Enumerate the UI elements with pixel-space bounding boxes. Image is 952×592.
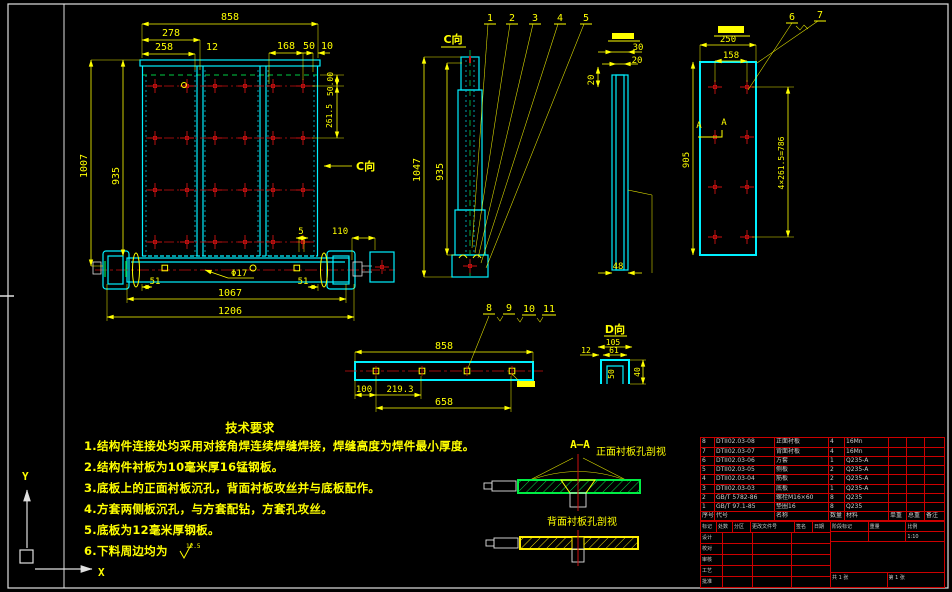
balloon-3: 3: [532, 13, 538, 24]
dim-51-right: 51: [298, 277, 309, 287]
dim-20-left: 20: [587, 75, 597, 86]
table-row: 6DTII02.03-06方套1Q235-A: [701, 456, 944, 465]
dim-1206: 1206: [218, 306, 242, 317]
dim-1047: 1047: [412, 158, 423, 182]
front-liner-section: [484, 454, 640, 511]
balloon-7: 7: [817, 10, 823, 21]
technical-requirements: 技术要求 1.结构件连接处均采用对接角焊连续焊缝焊接，焊缝高度为焊件最小厚度。 …: [84, 420, 475, 558]
front-view: 858 278 258 12 168 50 10 1007 935 50.00 …: [79, 12, 395, 321]
tech-item-1: 1.结构件连接处均采用对接角焊连续焊缝焊接，焊缝高度为焊件最小厚度。: [84, 439, 475, 453]
tb-cell: 比例: [906, 522, 944, 531]
bom-cell: [907, 448, 925, 456]
bom-cell: [889, 475, 907, 483]
bom-cell: [925, 466, 944, 474]
c-direction-arrow: C向: [324, 159, 375, 173]
d-bar-view: 858 100 219.3 658 8 9 10 11: [345, 303, 556, 412]
bom-cell: [925, 503, 944, 511]
dim-858-d: 858: [435, 341, 453, 352]
bom-cell: DTII02.03-08: [715, 438, 775, 447]
dim-261-5: 261.5: [325, 104, 334, 128]
dim-12: 12: [206, 42, 218, 53]
hole-tag-highlight: [517, 381, 535, 387]
tb-cell: 阶段标记: [831, 522, 869, 531]
tb-cell: 共 1 张: [831, 573, 888, 587]
balloon-9: 9: [506, 303, 512, 314]
table-row: 1GB/T 97.1-85垫圈168Q235: [701, 502, 944, 511]
bom-cell: [907, 485, 925, 493]
bom-header-cell: 代号: [715, 512, 775, 520]
dim-30: 30: [633, 43, 644, 53]
square-tube-detail: [370, 252, 394, 282]
dim-100: 100: [356, 385, 372, 395]
bom-cell: 1: [829, 457, 845, 465]
balloon-8: 8: [486, 303, 492, 314]
dim-250: 250: [720, 35, 736, 45]
balloon-6: 6: [789, 12, 795, 23]
dim-935: 935: [111, 167, 122, 185]
balloon-4: 4: [557, 13, 563, 24]
tb-cell: 工艺: [701, 566, 723, 576]
dim-168: 168: [277, 41, 295, 52]
bom-header-cell: 单重: [889, 512, 907, 520]
bom-cell: Q235-A: [845, 475, 889, 483]
balloon-2: 2: [509, 13, 515, 24]
bom-cell: [925, 485, 944, 493]
bom-cell: 4: [829, 448, 845, 456]
bom-cell: 正面衬板: [775, 438, 829, 447]
balloon-1: 1: [487, 13, 493, 24]
bom-header-cell: 备注: [925, 512, 944, 520]
bom-cell: 侧板: [775, 466, 829, 474]
dim-48: 48: [613, 262, 624, 272]
bom-cell: 筋板: [775, 475, 829, 483]
tb-cell: 签名: [795, 522, 813, 532]
table-row: 7DTII02.03-07背面衬板416Mn: [701, 447, 944, 456]
bom-cell: [889, 503, 907, 511]
tech-title: 技术要求: [225, 420, 275, 435]
c-arrow-label: C向: [356, 159, 375, 173]
tb-cell: 标记: [701, 522, 717, 532]
dim-12-channel: 12: [581, 346, 591, 355]
table-row: 3DTII02.03-03底板1Q235-A: [701, 484, 944, 493]
bom-cell: [907, 438, 925, 447]
bom-header-cell: 总重: [907, 512, 925, 520]
back-liner-section: [486, 530, 638, 566]
c-view-balloons: 1 2 3 4 5: [472, 13, 592, 268]
bom-cell: [907, 457, 925, 465]
bom-cell: 7: [701, 448, 715, 456]
table-row: 2GB/T 5782-86螺栓M16×608Q235: [701, 493, 944, 502]
bom-cell: [907, 503, 925, 511]
tech-item-5: 5.底板为12毫米厚钢板。: [84, 523, 220, 537]
bom-cell: 1: [701, 503, 715, 511]
bom-cell: Q235: [845, 503, 889, 511]
bom-cell: 6: [701, 457, 715, 465]
bom-cell: [889, 457, 907, 465]
parts-table: 8DTII02.03-08正面衬板416Mn 7DTII02.03-07背面衬板…: [700, 437, 945, 521]
title-block: 标记 处数 分区 更改文件号 签名 日期 设计 校对 审核 工艺 批准 阶段标记…: [700, 521, 945, 588]
title-block-right: 阶段标记 重量 比例 1:10 共 1 张 第 1 张: [831, 522, 944, 587]
d-bar-dimensions: 858 100 219.3 658: [355, 341, 533, 412]
tb-cell: 批准: [701, 577, 723, 587]
table-header-row: 序号代号名称数量材料单重总重备注: [701, 511, 944, 520]
c-view: C向 1047 935 1 2 3 4 5: [412, 13, 592, 277]
bom-cell: 垫圈16: [775, 503, 829, 511]
bom-cell: Q235: [845, 494, 889, 502]
dim-50-channel: 50: [607, 369, 616, 379]
section-mark-a2: A: [721, 118, 727, 128]
bom-cell: DTII02.03-07: [715, 448, 775, 456]
tb-cell: 校对: [701, 544, 723, 554]
side-view-dimensions: 30 20 20 48: [587, 43, 652, 273]
tb-cell: 审核: [701, 555, 723, 565]
tech-item-6: 6.下料周边均为: [84, 544, 168, 558]
title-block-left: 标记 处数 分区 更改文件号 签名 日期 设计 校对 审核 工艺 批准: [701, 522, 831, 587]
bom-cell: 16Mn: [845, 438, 889, 447]
weld-tag-highlight-2: [718, 26, 744, 33]
tech-item-2: 2.结构件衬板为10毫米厚16锰钢板。: [84, 460, 284, 474]
dim-phi17: Φ17: [231, 269, 247, 279]
bom-cell: [907, 475, 925, 483]
bom-cell: [925, 448, 944, 456]
bom-cell: 底板: [775, 485, 829, 493]
bom-cell: Q235-A: [845, 466, 889, 474]
back-liner-label: 背面衬板孔剖视: [547, 515, 617, 528]
tb-cell: 处数: [717, 522, 733, 532]
bom-cell: 8: [829, 503, 845, 511]
section-aa-label: A—A: [570, 438, 590, 451]
bom-cell: 方套: [775, 457, 829, 465]
bom-header-cell: 序号: [701, 512, 715, 520]
dim-258: 258: [155, 42, 173, 53]
bom-cell: 2: [701, 494, 715, 502]
roughness-value: 12.5: [186, 543, 201, 550]
bom-cell: [889, 448, 907, 456]
back-view-dimensions: 250 158 905 4×261.5=786: [682, 35, 794, 255]
bom-cell: GB/T 5782-86: [715, 494, 775, 502]
bom-cell: Q235-A: [845, 485, 889, 493]
bom-cell: [907, 494, 925, 502]
dim-905: 905: [682, 152, 692, 168]
dim-110: 110: [332, 227, 348, 237]
tb-cell: 更改文件号: [751, 522, 795, 532]
dim-40: 40: [633, 367, 642, 377]
side-view: 30 20 20 48: [587, 33, 652, 273]
dim-935-c: 935: [435, 163, 446, 181]
tb-cell: 设计: [701, 533, 723, 543]
tech-item-3: 3.底板上的正面衬板沉孔，背面衬板攻丝并与底板配作。: [84, 481, 380, 495]
dim-rows: 4×261.5=786: [777, 136, 786, 189]
dim-1007: 1007: [79, 154, 90, 178]
bom-cell: Q235-A: [845, 457, 889, 465]
bom-cell: 4: [829, 438, 845, 447]
dim-1067: 1067: [218, 288, 242, 299]
bom-cell: [889, 466, 907, 474]
bom-cell: 4: [701, 475, 715, 483]
bom-cell: 5: [701, 466, 715, 474]
drawing-title-cell: [831, 542, 944, 573]
d-channel-view: D向 105 61 12 40 50: [580, 322, 646, 384]
tech-item-4: 4.方套两侧板沉孔，与方套配钻，方套孔攻丝。: [84, 502, 333, 516]
d-view-title: D向: [605, 322, 625, 336]
dim-5: 5: [298, 227, 303, 237]
back-view-holes: [708, 80, 754, 244]
bom-cell: DTII02.03-06: [715, 457, 775, 465]
dim-858: 858: [221, 12, 239, 23]
section-mark-a1: A: [696, 121, 702, 131]
roughness-symbol: 12.5: [180, 543, 201, 558]
front-liner-label: 正面衬板孔剖视: [596, 445, 666, 458]
bom-cell: 2: [829, 475, 845, 483]
x-axis-label: X: [98, 566, 105, 579]
bom-cell: 16Mn: [845, 448, 889, 456]
bom-header-cell: 材料: [845, 512, 889, 520]
cad-drawing-canvas: 858 278 258 12 168 50 10 1007 935 50.00 …: [0, 0, 952, 592]
dim-51-left: 51: [150, 277, 161, 287]
dim-658: 658: [435, 397, 453, 408]
tb-cell: 分区: [733, 522, 751, 532]
bom-cell: 背面衬板: [775, 448, 829, 456]
front-view-hole-rows: [146, 79, 314, 249]
y-axis-label: Y: [22, 470, 29, 483]
bom-cell: DTII02.03-03: [715, 485, 775, 493]
bom-cell: 8: [701, 438, 715, 447]
dim-219: 219.3: [386, 385, 413, 395]
table-row: 4DTII02.03-04筋板2Q235-A: [701, 474, 944, 483]
table-row: 8DTII02.03-08正面衬板416Mn: [701, 438, 944, 447]
scale-value: 1:10: [906, 532, 944, 541]
bom-cell: DTII02.03-04: [715, 475, 775, 483]
bom-cell: [889, 494, 907, 502]
tb-cell: 第 1 张: [888, 573, 945, 587]
tb-cell: 日期: [813, 522, 830, 532]
bom-cell: 螺栓M16×60: [775, 494, 829, 502]
back-view-balloons: 6 7: [748, 10, 826, 90]
bom-cell: [925, 457, 944, 465]
dim-50: 50: [303, 41, 315, 52]
bom-cell: [925, 494, 944, 502]
tb-cell: 重量: [869, 522, 907, 531]
dim-158: 158: [723, 51, 739, 61]
bom-cell: [889, 485, 907, 493]
front-view-ribs: [195, 66, 268, 256]
weld-tag-highlight: [612, 33, 634, 39]
section-detail: A—A 正面衬板孔剖视 背面衬板孔剖视: [484, 438, 666, 566]
bom-header-cell: 名称: [775, 512, 829, 520]
bom-cell: DTII02.03-05: [715, 466, 775, 474]
dim-50-00: 50.00: [326, 72, 335, 96]
dim-278: 278: [162, 28, 180, 39]
bom-header-cell: 数量: [829, 512, 845, 520]
c-view-title: C向: [443, 32, 462, 46]
bom-cell: 8: [829, 494, 845, 502]
table-row: 5DTII02.03-05侧板2Q235-A: [701, 465, 944, 474]
back-view: 250 158 905 4×261.5=786 A A 6 7: [682, 10, 826, 255]
bom-cell: 3: [701, 485, 715, 493]
dim-10: 10: [321, 41, 333, 52]
bom-cell: [925, 475, 944, 483]
dim-20: 20: [632, 56, 643, 66]
bom-cell: [925, 438, 944, 447]
bom-cell: 2: [829, 466, 845, 474]
bom-cell: GB/T 97.1-85: [715, 503, 775, 511]
dim-61: 61: [609, 346, 619, 355]
bom-cell: [889, 438, 907, 447]
balloon-5: 5: [583, 13, 589, 24]
bom-cell: [907, 466, 925, 474]
bom-cell: 1: [829, 485, 845, 493]
balloon-10: 10: [523, 304, 535, 315]
balloon-11: 11: [543, 304, 555, 315]
